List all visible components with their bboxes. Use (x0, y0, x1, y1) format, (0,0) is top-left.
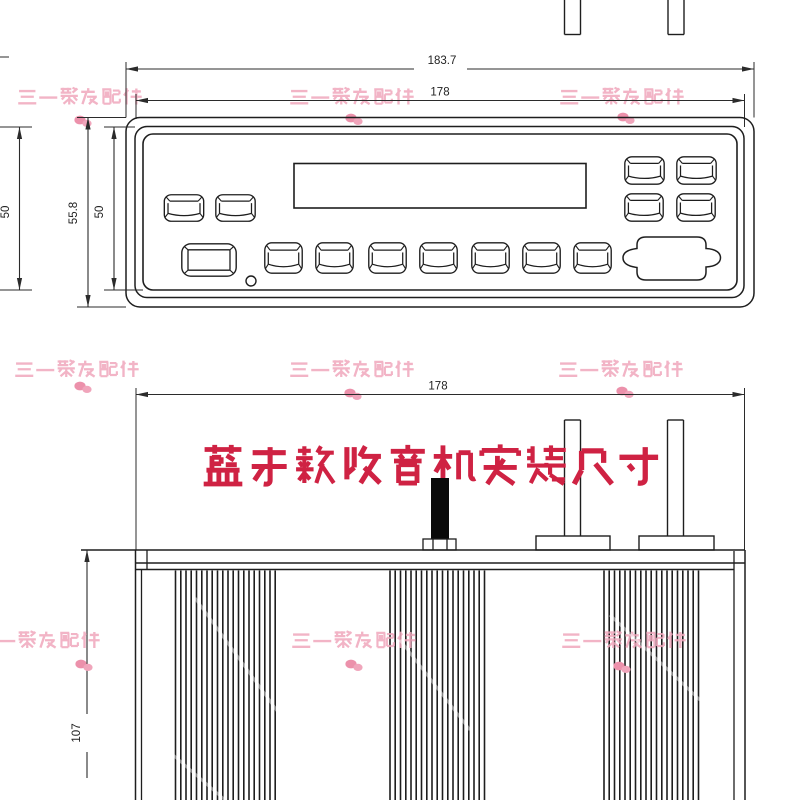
svg-text:107: 107 (71, 723, 83, 742)
svg-text:55.8: 55.8 (68, 202, 80, 224)
svg-text:178: 178 (430, 87, 449, 99)
svg-text:50: 50 (94, 206, 106, 219)
svg-text:178: 178 (428, 381, 447, 393)
svg-text:183.7: 183.7 (428, 55, 457, 67)
svg-text:50: 50 (0, 206, 12, 219)
